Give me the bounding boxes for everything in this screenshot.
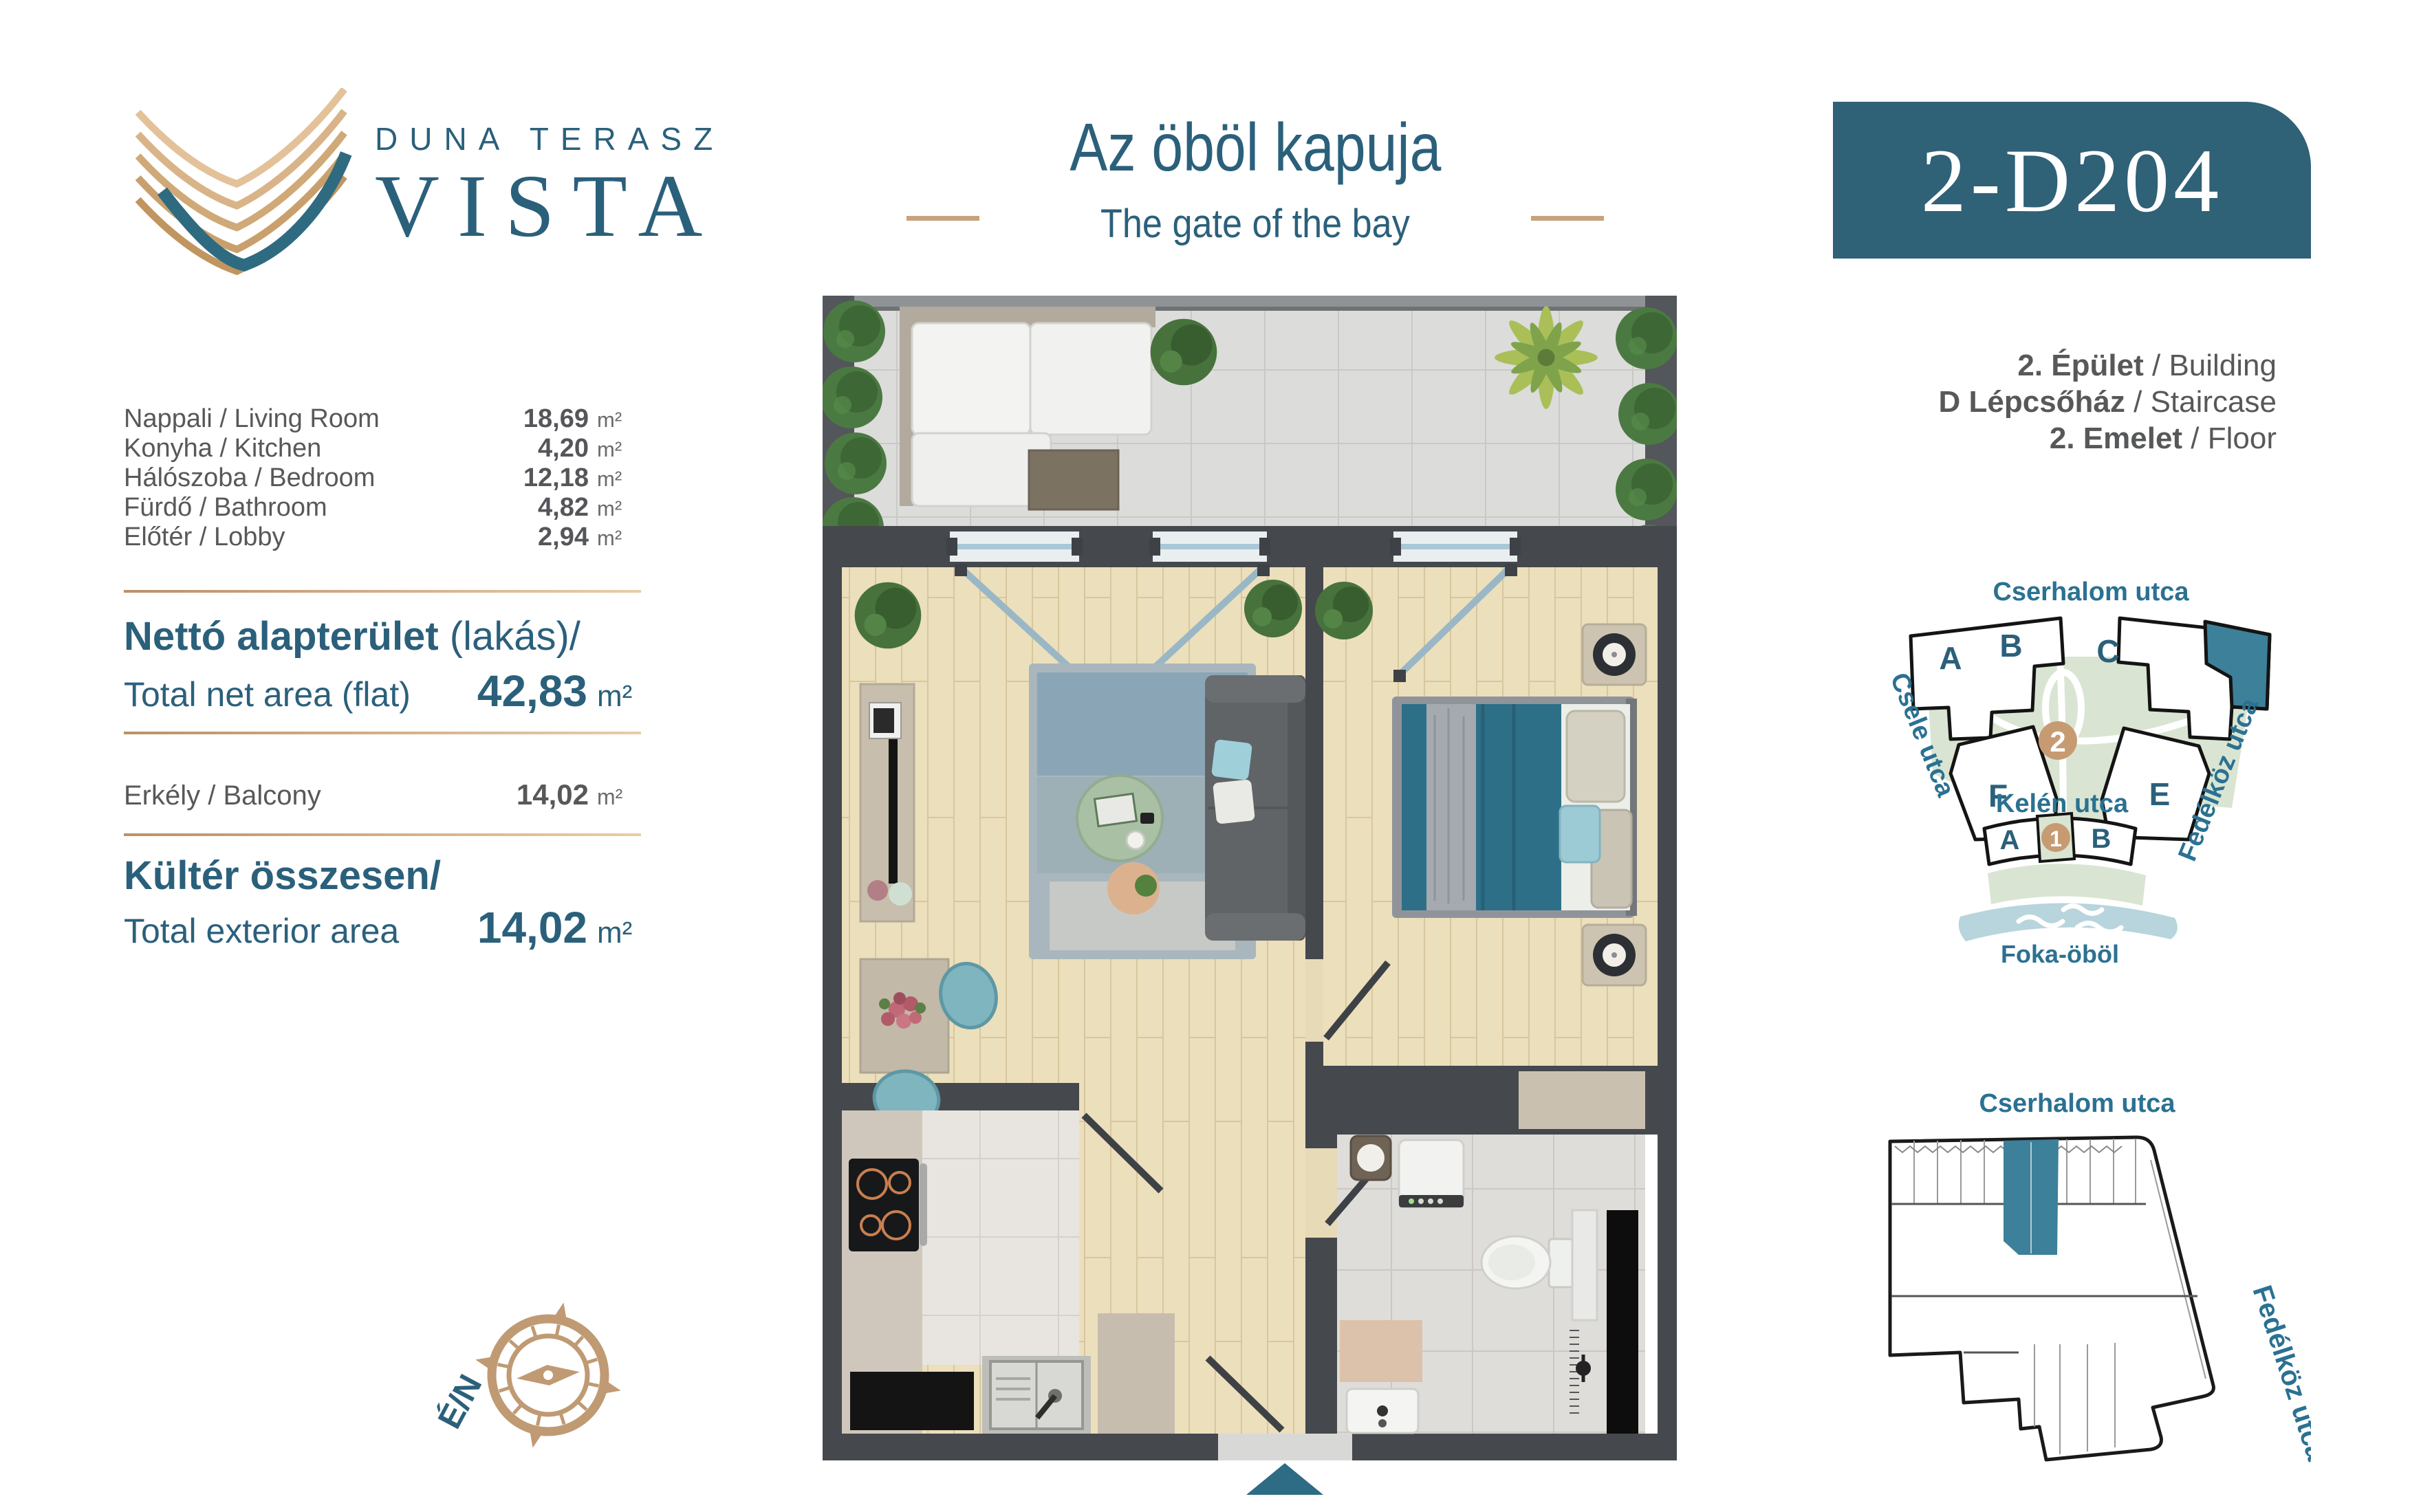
bed: [1392, 697, 1637, 918]
glass-doors-top: [946, 532, 1521, 562]
page-subtitle: The gate of the bay: [963, 201, 1548, 247]
kitchen-sink: [982, 1356, 1091, 1434]
divider: [124, 833, 641, 836]
table-row: Hálószoba / Bedroom 12,18 m²: [124, 463, 641, 493]
bathroom-sink: [1347, 1389, 1418, 1433]
phase-1-number: 1: [2050, 826, 2062, 851]
room-area-table: Nappali / Living Room 18,69 m² Konyha / …: [124, 404, 641, 552]
divider: [124, 732, 641, 734]
brand-name-vista: VISTA: [375, 162, 760, 251]
title-dash-right: [1531, 216, 1604, 221]
exterior-row: Total exterior area 14,02 m²: [124, 902, 641, 953]
staircase-line: D Lépcsőház / Staircase: [1864, 384, 2277, 420]
towel-basket: [1351, 1136, 1391, 1180]
keymap-street-right-label: Fedélköz utca: [2246, 1282, 2311, 1465]
plant: [855, 582, 922, 649]
refrigerator: [850, 1372, 974, 1430]
floor-plan: [823, 296, 1677, 1460]
compass-north-label: É/N: [431, 1368, 489, 1434]
block-c-label: C: [2096, 633, 2119, 669]
key-map: Cserhalom utca Fedélköz utca: [1840, 1083, 2311, 1468]
entry-opening: [1218, 1434, 1352, 1460]
balcony-plant: [1151, 319, 1217, 386]
keymap-highlighted-unit: [2004, 1139, 2059, 1255]
phase-2-number: 2: [2050, 725, 2065, 758]
net-area-row: Total net area (flat) 42,83 m²: [124, 666, 641, 716]
brand-text: DUNA TERASZ VISTA: [375, 120, 760, 251]
floor-line: 2. Emelet / Floor: [1864, 420, 2277, 457]
small-plant: [1135, 875, 1157, 897]
street-kelen-label: Kelén utca: [1996, 789, 2129, 818]
pillow-teal: [1211, 739, 1252, 780]
tv-console: [860, 684, 914, 921]
divider: [124, 590, 641, 593]
building-info: 2. Épület / Building D Lépcsőház / Stair…: [1864, 347, 2277, 457]
plant: [1315, 582, 1373, 639]
bathroom-niche: [1519, 1071, 1645, 1129]
lower-a-label: A: [2000, 825, 2020, 855]
table-row: Nappali / Living Room 18,69 m²: [124, 404, 641, 434]
block-e-label: E: [2149, 776, 2171, 812]
keymap-street-top-label: Cserhalom utca: [1979, 1089, 2175, 1118]
table-row: Konyha / Kitchen 4,20 m²: [124, 434, 641, 463]
lower-b-label: B: [2092, 824, 2112, 854]
net-area-title: Nettó alapterület (lakás)/: [124, 613, 580, 659]
exterior-title: Kültér összesen/: [124, 853, 441, 899]
brand-name-top: DUNA TERASZ: [375, 120, 760, 157]
plant: [1244, 580, 1302, 637]
bathtub: [1607, 1210, 1638, 1434]
unit-code: 2-D204: [1921, 128, 2223, 233]
table-row: Fürdő / Bathroom 4,82 m²: [124, 493, 641, 523]
table-row: Előtér / Lobby 2,94 m²: [124, 523, 641, 552]
block-d-label: D: [2160, 629, 2182, 665]
nightstand: [1583, 925, 1646, 985]
bedroom-door-opening: [1305, 959, 1323, 1042]
brand-logo-icon: [113, 88, 375, 294]
bath-shelf: [1572, 1210, 1597, 1320]
site-map: A B C D F E 2 1 A B Cserhalom utca Csele…: [1857, 567, 2325, 994]
block-b-label: B: [1999, 628, 2022, 664]
entry-cabinet: [1098, 1313, 1175, 1434]
nightstand: [1583, 624, 1646, 685]
pillow: [1567, 711, 1625, 802]
washing-machine: [1399, 1140, 1464, 1207]
street-cserhalom-label: Cserhalom utca: [1993, 578, 2189, 606]
bay-label: Foka-öböl: [2001, 940, 2119, 968]
outdoor-table: [1029, 450, 1118, 510]
sofa: [1205, 675, 1305, 941]
compass-icon: É/N: [430, 1291, 622, 1463]
building-line: 2. Épület / Building: [1864, 347, 2277, 384]
balcony-row: Erkély / Balcony 14,02 m²: [124, 778, 641, 811]
compass-rose: [460, 1291, 622, 1463]
bathroom-door-opening: [1305, 1148, 1337, 1238]
unit-code-badge: 2-D204: [1833, 102, 2311, 259]
page-title: Az öböl kapuja: [963, 109, 1548, 186]
brochure-page: DUNA TERASZ VISTA Az öböl kapuja The gat…: [0, 0, 2410, 1512]
oven-handle: [920, 1163, 927, 1246]
shore-green: [1988, 864, 2146, 906]
bath-mat: [1340, 1320, 1422, 1382]
cooktop: [849, 1159, 927, 1251]
pillow-white: [1213, 779, 1255, 824]
toilet: [1481, 1236, 1574, 1289]
block-a-label: A: [1939, 640, 1962, 676]
pillow-teal: [1560, 806, 1600, 862]
balcony-palm: [1495, 306, 1598, 409]
entry-arrow-icon: [1246, 1463, 1323, 1495]
